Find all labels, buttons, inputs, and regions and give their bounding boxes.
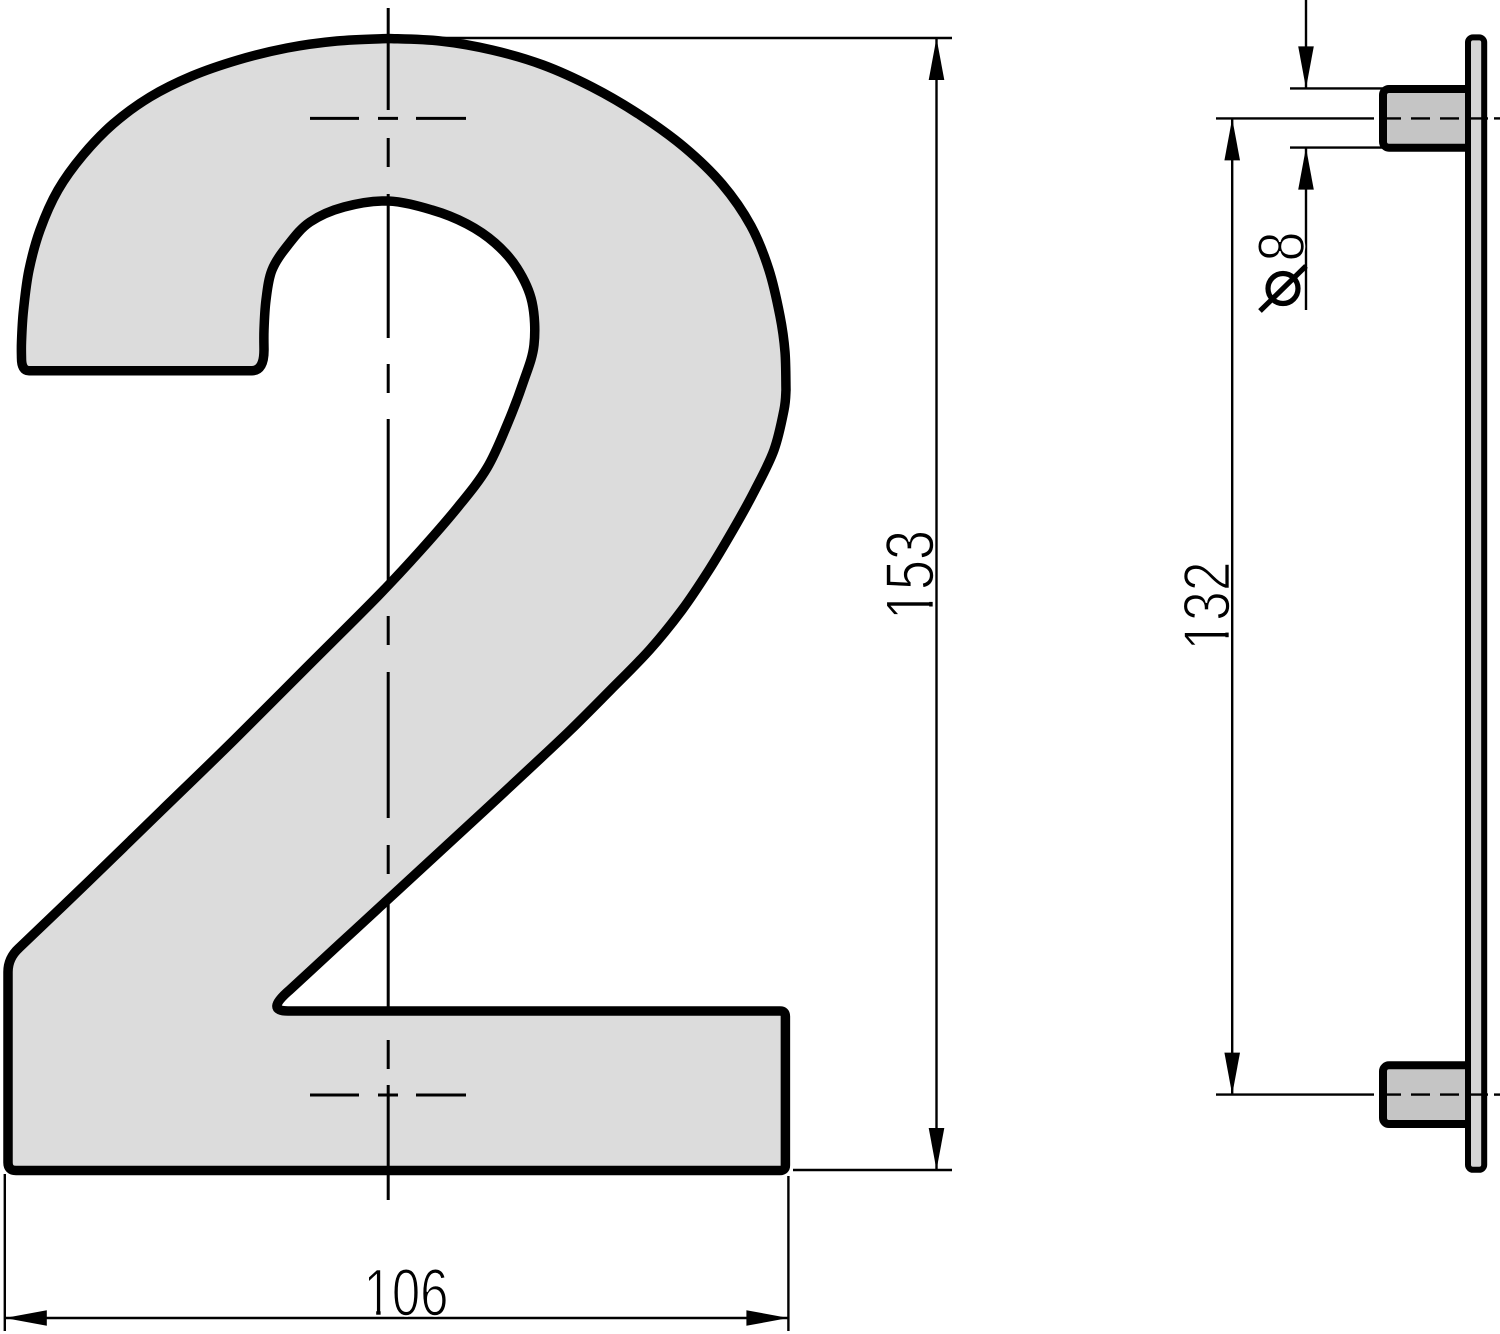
svg-text:132: 132 — [1170, 562, 1244, 651]
svg-text:153: 153 — [872, 530, 949, 620]
svg-text:106: 106 — [364, 1256, 449, 1331]
svg-text:8: 8 — [1244, 232, 1318, 262]
